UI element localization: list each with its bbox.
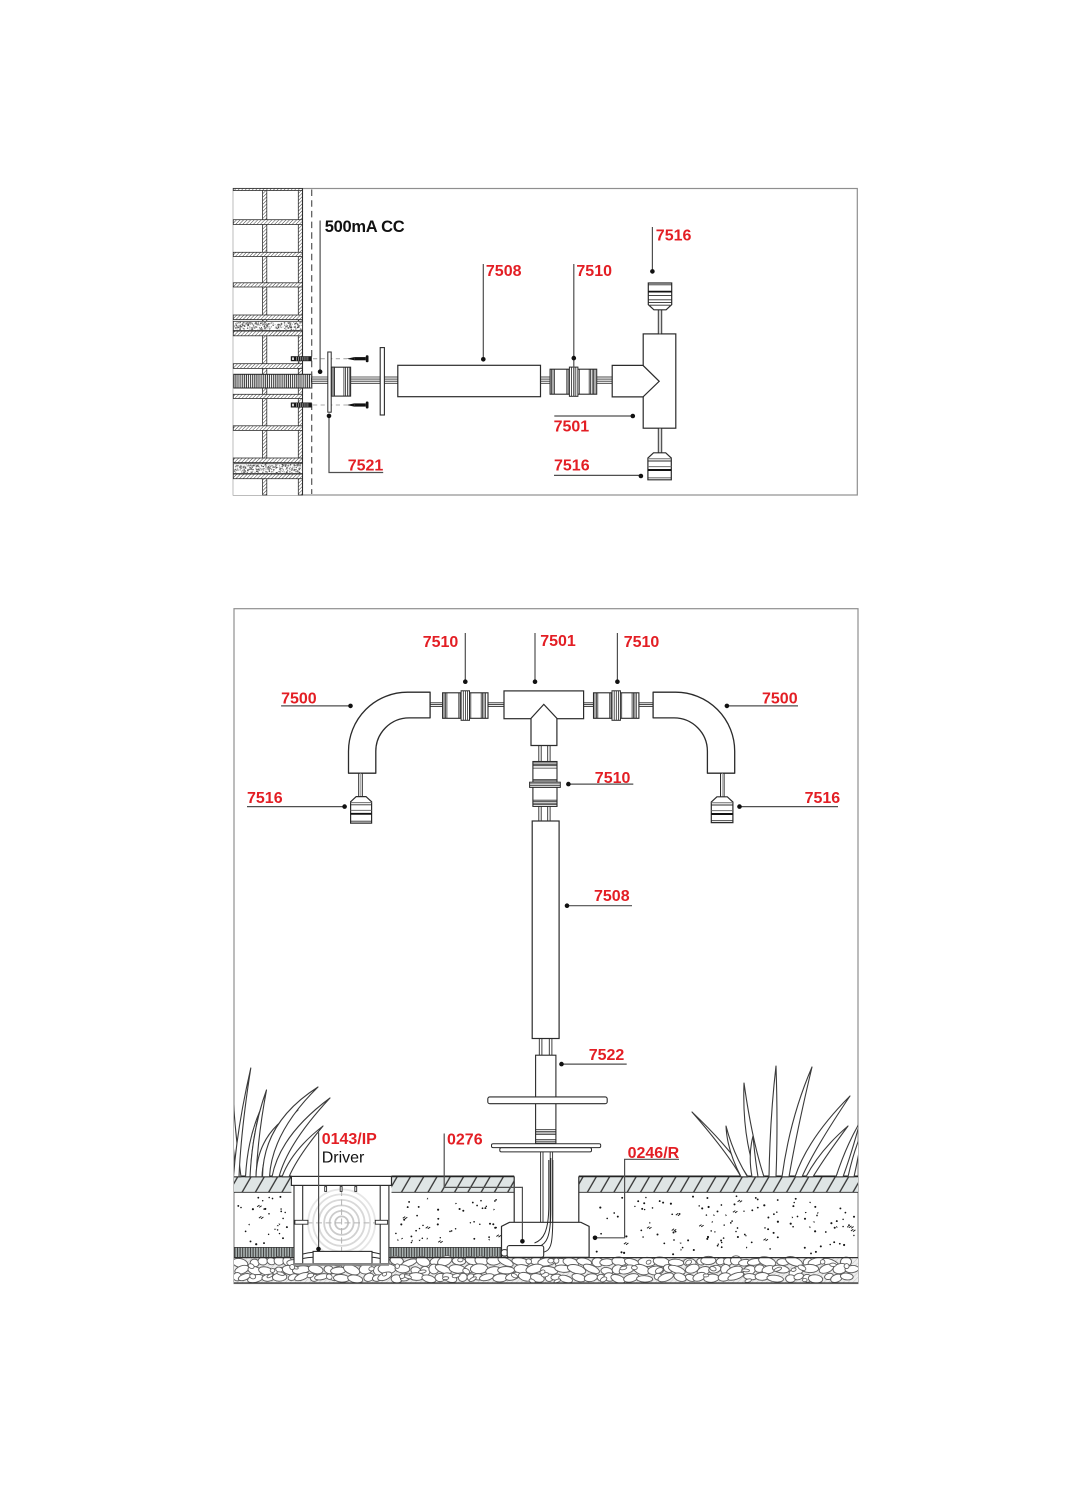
svg-text:7516: 7516 bbox=[656, 227, 692, 244]
svg-text:7516: 7516 bbox=[554, 457, 590, 474]
svg-text:7510: 7510 bbox=[624, 634, 660, 651]
svg-text:0246/R: 0246/R bbox=[628, 1145, 680, 1162]
svg-text:7521: 7521 bbox=[348, 457, 384, 474]
svg-text:0276: 0276 bbox=[447, 1132, 483, 1149]
svg-text:7516: 7516 bbox=[805, 790, 841, 807]
svg-text:7510: 7510 bbox=[576, 263, 612, 280]
svg-text:7516: 7516 bbox=[247, 790, 283, 807]
svg-text:0143/IP: 0143/IP bbox=[322, 1131, 377, 1148]
svg-text:7510: 7510 bbox=[595, 770, 631, 787]
svg-text:7501: 7501 bbox=[540, 633, 576, 650]
svg-text:7510: 7510 bbox=[423, 634, 459, 651]
svg-text:7500: 7500 bbox=[281, 691, 317, 708]
svg-text:7501: 7501 bbox=[554, 419, 590, 436]
svg-text:7508: 7508 bbox=[486, 263, 522, 280]
svg-text:7522: 7522 bbox=[589, 1047, 625, 1064]
svg-text:Driver: Driver bbox=[322, 1150, 365, 1167]
svg-text:7500: 7500 bbox=[762, 691, 798, 708]
svg-text:7508: 7508 bbox=[594, 888, 630, 905]
svg-text:500mA CC: 500mA CC bbox=[325, 218, 405, 236]
